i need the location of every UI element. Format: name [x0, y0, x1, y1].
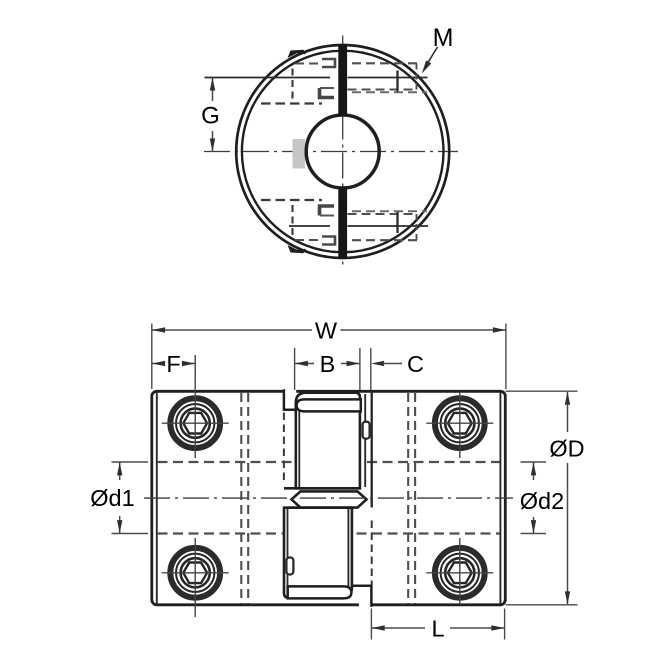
- svg-text:B: B: [320, 351, 336, 377]
- svg-text:ØD: ØD: [549, 436, 584, 462]
- svg-text:M: M: [433, 24, 454, 52]
- svg-text:Ød2: Ød2: [520, 488, 564, 514]
- svg-text:W: W: [315, 318, 338, 344]
- svg-text:C: C: [407, 351, 424, 377]
- svg-text:L: L: [431, 616, 444, 642]
- svg-text:G: G: [201, 103, 220, 130]
- svg-text:Ød1: Ød1: [90, 485, 134, 511]
- svg-text:F: F: [166, 351, 180, 377]
